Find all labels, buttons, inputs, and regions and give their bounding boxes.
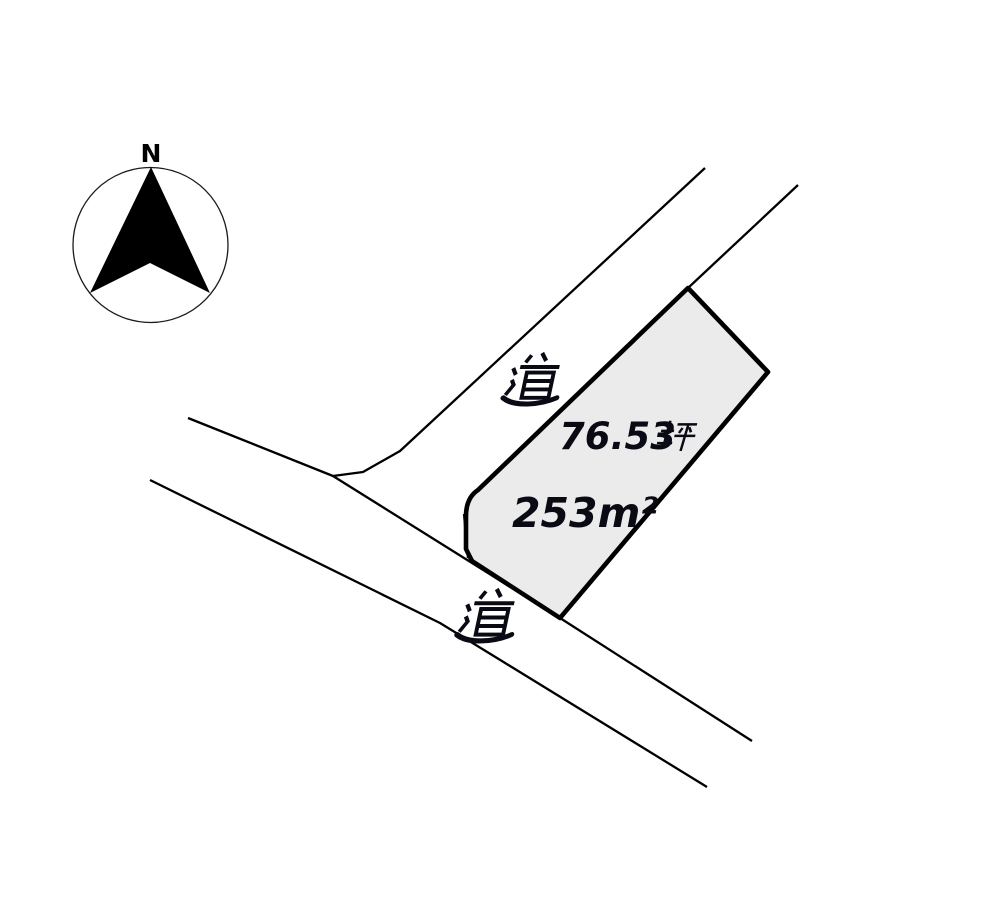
upper-road-right-edge-line: [688, 185, 798, 288]
site-plan-canvas: N 道 道 76.53 坪 253m²: [0, 0, 1000, 905]
compass: N: [73, 139, 228, 323]
site-plan-drawing: N 道 道 76.53 坪 253m²: [0, 0, 1000, 905]
north-label: N: [141, 139, 162, 168]
road-lines: [150, 168, 798, 787]
north-arrow-icon: [90, 167, 210, 293]
area-sqm-label: 253m²: [512, 489, 658, 537]
lower-road-label: 道: [456, 589, 524, 657]
area-tsubo-value: 76.53: [559, 415, 676, 458]
upper-road-label: 道: [502, 353, 570, 417]
